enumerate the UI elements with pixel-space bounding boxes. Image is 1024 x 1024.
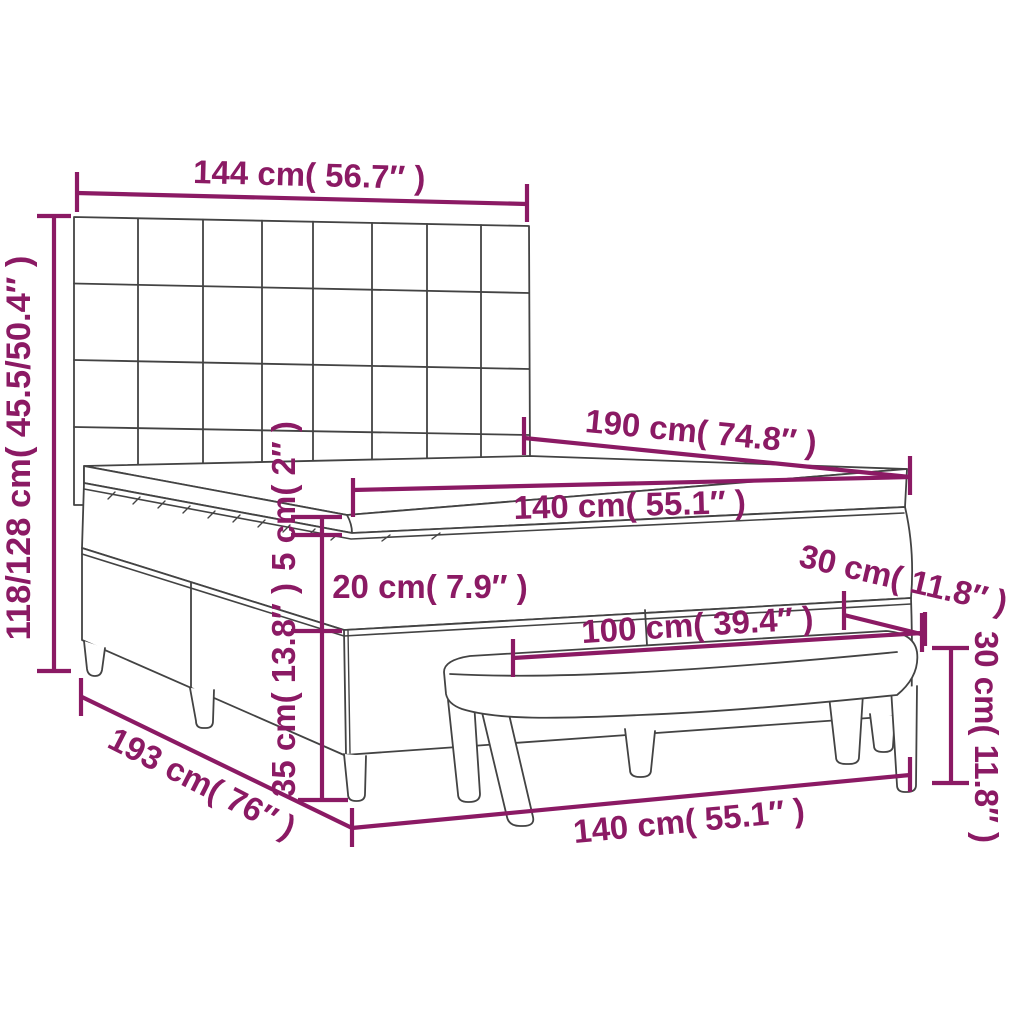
- svg-text:140 cm( 55.1″ ): 140 cm( 55.1″ ): [513, 483, 746, 526]
- svg-text:35 cm( 13.8″ ): 35 cm( 13.8″ ): [265, 583, 302, 797]
- svg-text:5 cm( 2″ ): 5 cm( 2″ ): [265, 421, 302, 571]
- svg-text:144 cm( 56.7″ ): 144 cm( 56.7″ ): [193, 153, 426, 196]
- svg-text:190 cm( 74.8″ ): 190 cm( 74.8″ ): [584, 402, 819, 461]
- svg-text:20 cm( 7.9″ ): 20 cm( 7.9″ ): [332, 568, 528, 605]
- svg-text:118/128 cm( 45.5/50.4″ ): 118/128 cm( 45.5/50.4″ ): [0, 256, 38, 641]
- svg-text:30 cm( 11.8″ ): 30 cm( 11.8″ ): [968, 631, 1005, 843]
- svg-text:140 cm( 55.1″ ): 140 cm( 55.1″ ): [572, 791, 807, 850]
